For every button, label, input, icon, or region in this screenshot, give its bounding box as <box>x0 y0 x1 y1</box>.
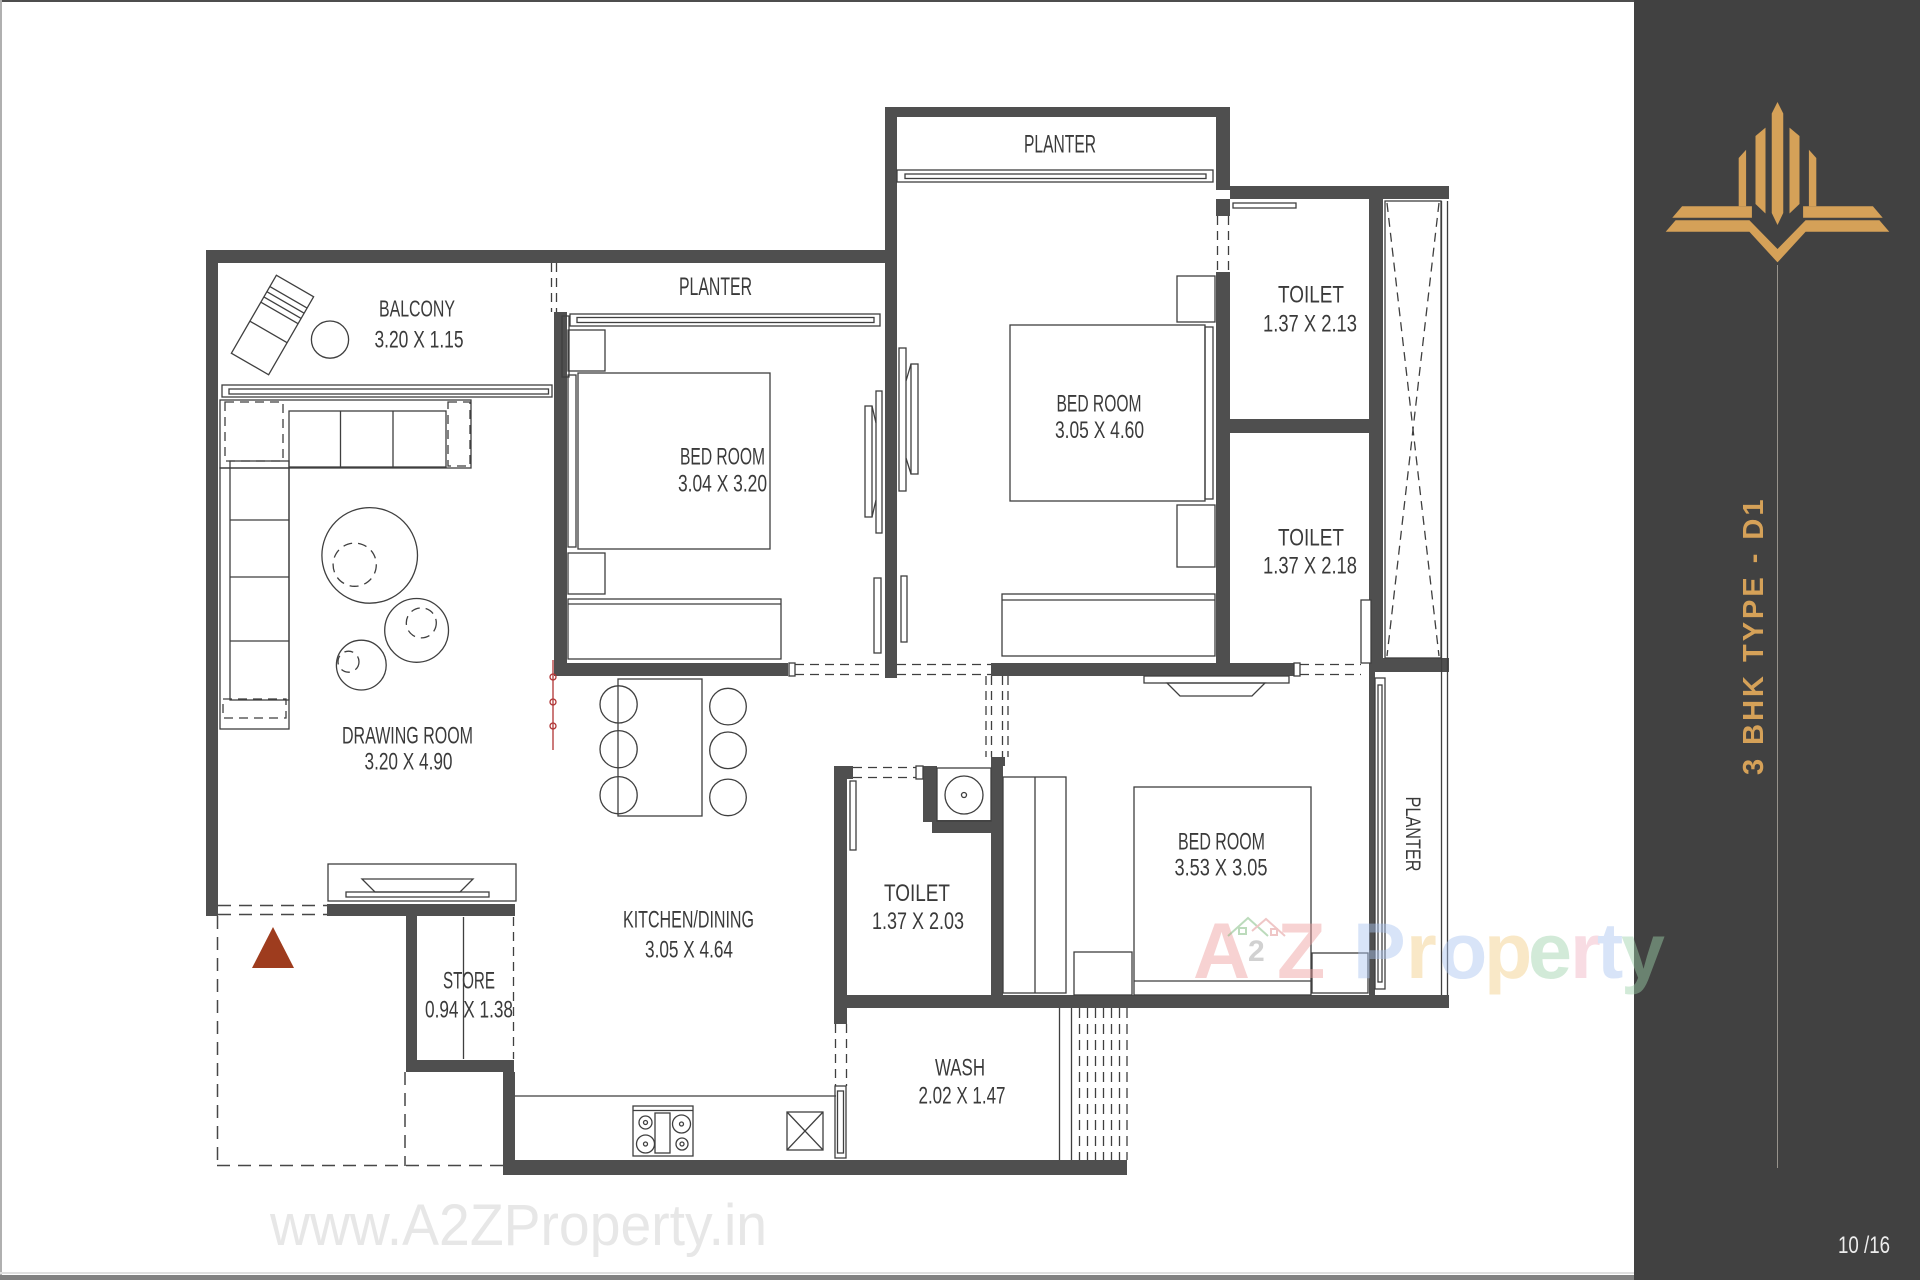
svg-text:y: y <box>1621 906 1665 995</box>
svg-text:1.37 X 2.13: 1.37 X 2.13 <box>1263 311 1357 338</box>
svg-text:2.02 X 1.47: 2.02 X 1.47 <box>919 1083 1006 1110</box>
svg-text:TOILET: TOILET <box>1278 525 1344 552</box>
svg-text:STORE: STORE <box>443 968 495 995</box>
svg-text:3.53 X 3.05: 3.53 X 3.05 <box>1175 855 1268 882</box>
svg-text:DRAWING ROOM: DRAWING ROOM <box>342 723 473 750</box>
svg-text:PLANTER: PLANTER <box>1401 797 1424 872</box>
svg-text:BED ROOM: BED ROOM <box>1057 391 1142 418</box>
svg-text:BALCONY: BALCONY <box>379 296 455 322</box>
svg-text:TOILET: TOILET <box>884 880 950 907</box>
svg-text:t: t <box>1597 906 1623 995</box>
svg-text:BED ROOM: BED ROOM <box>680 444 765 471</box>
svg-text:1.37 X 2.18: 1.37 X 2.18 <box>1263 553 1357 580</box>
svg-text:p: p <box>1484 906 1532 995</box>
svg-text:3.05 X 4.64: 3.05 X 4.64 <box>645 937 733 964</box>
svg-text:0.94 X 1.38: 0.94 X 1.38 <box>425 997 513 1024</box>
svg-text:3.20 X 1.15: 3.20 X 1.15 <box>375 327 464 354</box>
svg-text:10 /16: 10 /16 <box>1838 1232 1890 1259</box>
svg-text:3.20 X 4.90: 3.20 X 4.90 <box>365 749 453 776</box>
svg-text:3.05 X 4.60: 3.05 X 4.60 <box>1055 417 1144 444</box>
svg-text:3.04 X 3.20: 3.04 X 3.20 <box>678 471 767 498</box>
svg-text:e: e <box>1528 906 1572 995</box>
svg-text:P: P <box>1353 906 1406 995</box>
svg-text:2: 2 <box>1248 935 1265 968</box>
svg-text:KITCHEN/DINING: KITCHEN/DINING <box>623 907 754 934</box>
svg-text:BED ROOM: BED ROOM <box>1178 829 1265 856</box>
svg-text:3 BHK TYPE - D1: 3 BHK TYPE - D1 <box>1738 497 1770 775</box>
svg-text:1.37 X 2.03: 1.37 X 2.03 <box>872 908 964 935</box>
svg-text:PLANTER: PLANTER <box>1024 131 1096 159</box>
svg-text:TOILET: TOILET <box>1278 282 1344 309</box>
svg-text:PLANTER: PLANTER <box>679 273 752 301</box>
svg-text:r: r <box>1406 906 1437 995</box>
svg-text:A: A <box>1193 906 1250 995</box>
svg-text:WASH: WASH <box>935 1055 985 1082</box>
svg-text:Z: Z <box>1277 906 1325 995</box>
svg-text:www.A2ZProperty.in: www.A2ZProperty.in <box>269 1193 767 1258</box>
svg-text:o: o <box>1439 906 1487 995</box>
